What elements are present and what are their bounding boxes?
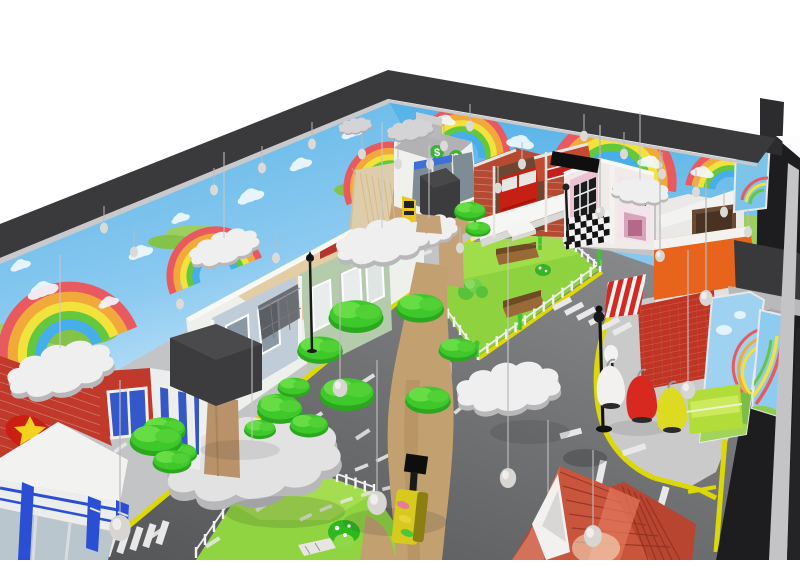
svg-text:$: $ xyxy=(434,147,440,159)
